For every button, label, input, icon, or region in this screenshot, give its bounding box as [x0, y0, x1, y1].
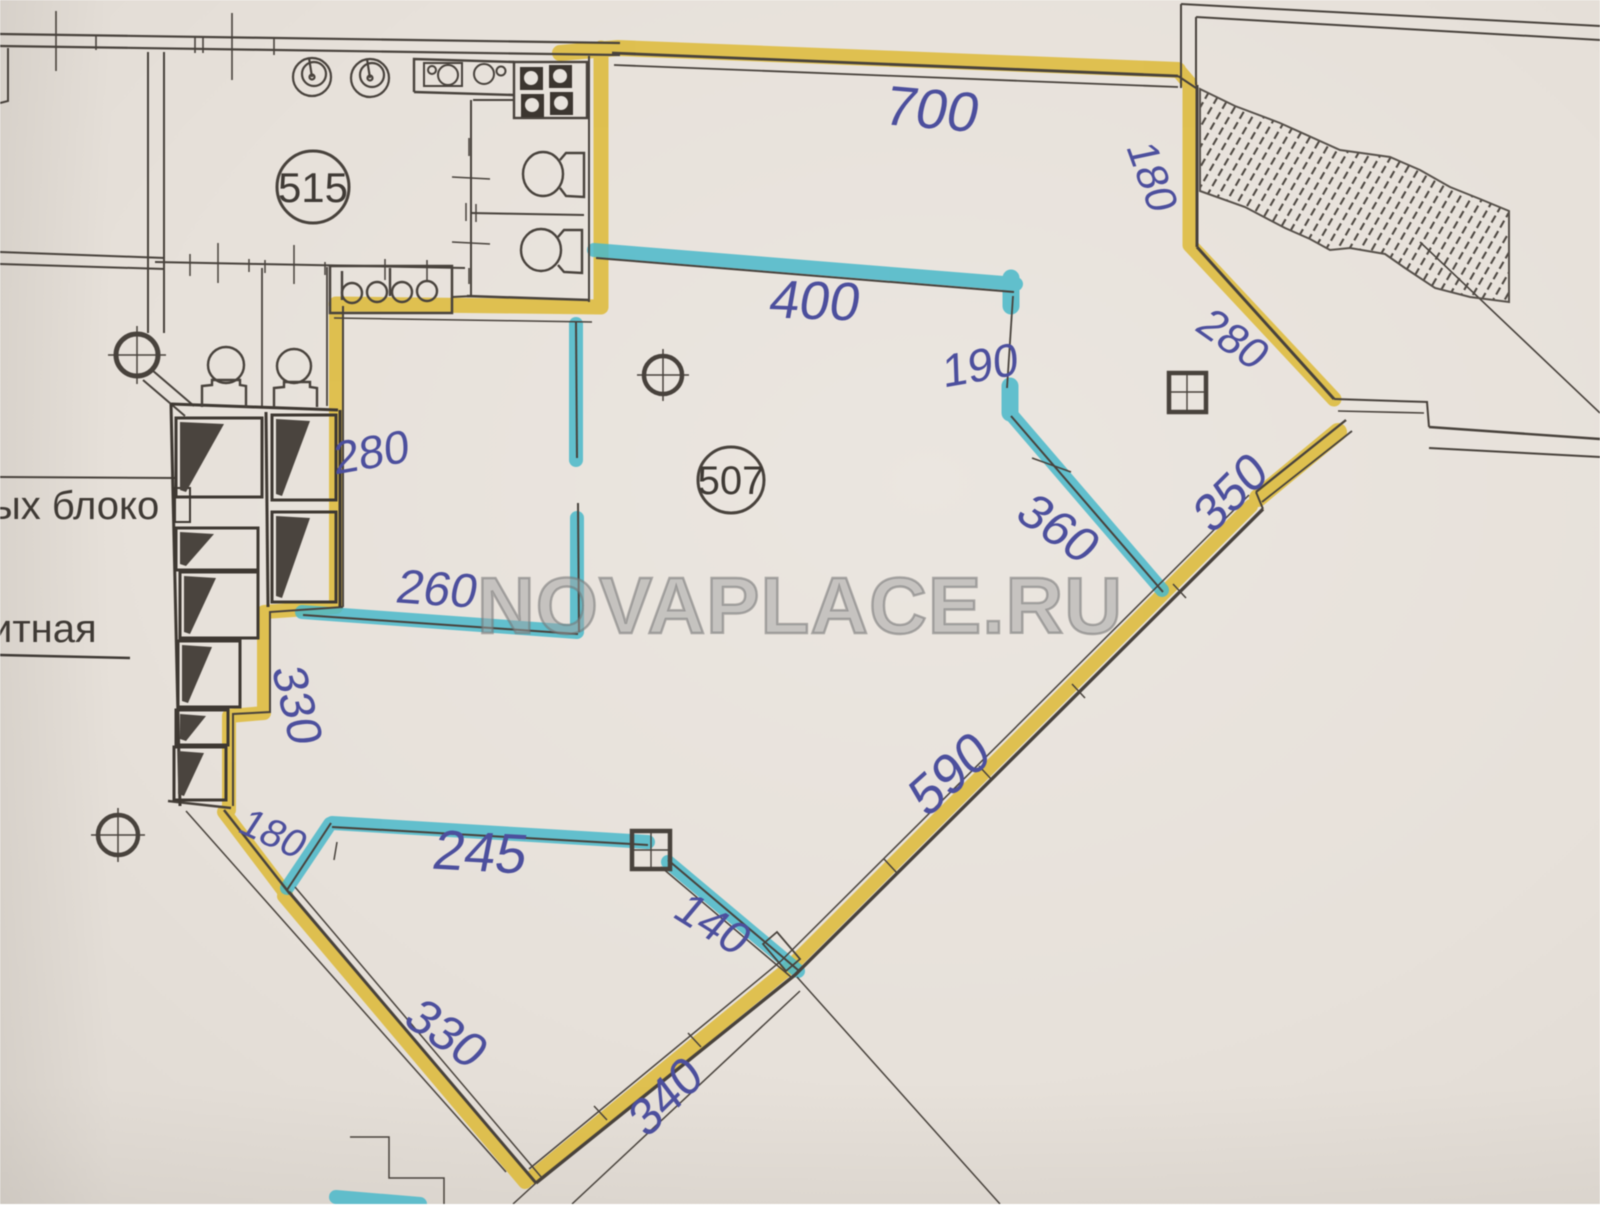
svg-text:260: 260	[392, 560, 483, 619]
svg-text:ых блоко: ых блоко	[0, 484, 159, 528]
svg-text:507: 507	[698, 459, 765, 503]
svg-text:NOVAPLACE.RU: NOVAPLACE.RU	[477, 561, 1123, 650]
svg-text:400: 400	[765, 270, 865, 333]
svg-text:итная: итная	[0, 607, 97, 651]
svg-text:245: 245	[428, 818, 533, 885]
svg-text:515: 515	[278, 164, 348, 211]
svg-text:700: 700	[879, 74, 986, 144]
